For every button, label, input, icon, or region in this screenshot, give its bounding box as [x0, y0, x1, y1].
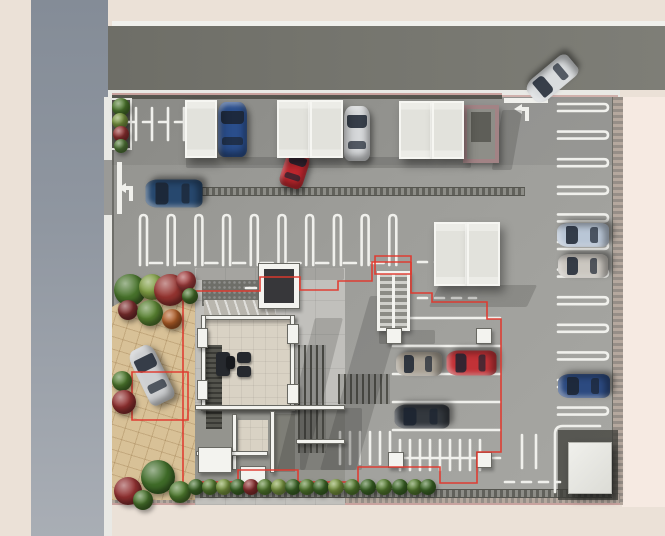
bush [118, 300, 138, 320]
bush [328, 479, 344, 495]
bush [313, 479, 329, 495]
bush [182, 288, 198, 304]
bush [137, 300, 163, 326]
bush [114, 139, 128, 153]
bush [360, 479, 376, 495]
bush [162, 309, 182, 329]
bush [133, 490, 153, 510]
bush [420, 479, 436, 495]
bush [112, 371, 132, 391]
site-plan-canvas [0, 0, 665, 536]
bush [392, 479, 408, 495]
bush [112, 390, 136, 414]
bush [344, 479, 360, 495]
landscaping-layer [0, 0, 665, 536]
bush [376, 479, 392, 495]
